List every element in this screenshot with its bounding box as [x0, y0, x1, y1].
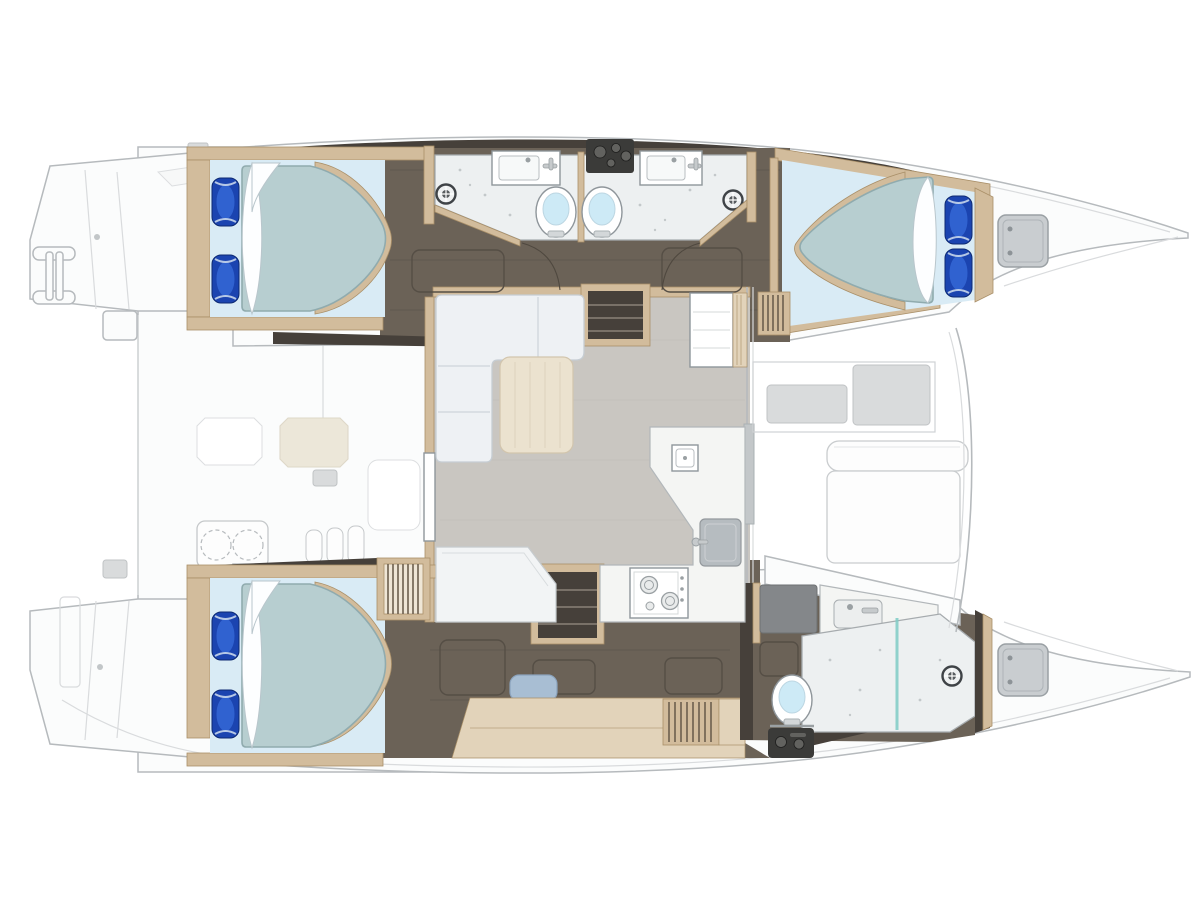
toilet: [536, 187, 576, 237]
fridge-cabinet: [690, 293, 747, 367]
shower-mixer: [943, 667, 962, 686]
vanity-sink-left: [492, 151, 560, 185]
top-load-appliance: [760, 585, 817, 633]
bed-frame: [187, 147, 433, 160]
stairs-port: [581, 284, 650, 346]
vanity-sink-right: [640, 151, 702, 185]
louvered-locker: [377, 558, 430, 620]
bed-frame: [187, 753, 383, 766]
cockpit-pad: [853, 365, 930, 425]
galley-stove: [630, 568, 688, 618]
pillow: [212, 612, 239, 660]
washer-panel: [768, 728, 814, 758]
helm-appliance: [586, 139, 634, 173]
salon-table: [500, 357, 573, 453]
bed-frame: [187, 317, 383, 330]
bath-fwd-trim: [983, 614, 992, 730]
salon-side-door: [424, 453, 435, 541]
forepeak-hatch: [998, 215, 1048, 267]
bed-frame: [187, 578, 210, 738]
desk-stool: [510, 675, 557, 701]
cockpit-vent: [758, 292, 790, 335]
floor-plan-canvas: Catamaran yacht interior layout plan (to…: [0, 0, 1200, 900]
toilet: [582, 187, 622, 237]
stern-step-port: [103, 311, 137, 340]
headboard: [975, 188, 993, 302]
cockpit-pad: [767, 385, 847, 423]
outdoor-grill-module: [197, 521, 268, 568]
deck-pad: [368, 460, 420, 530]
bathroom-divider-wall: [578, 152, 584, 242]
track-car: [313, 470, 337, 486]
deck-fitting-dot: [97, 664, 103, 670]
pillow: [212, 690, 239, 738]
bathrooms-port: [435, 139, 756, 246]
forward-bench: [827, 441, 968, 563]
deck-locker: [103, 560, 127, 578]
pillow: [212, 255, 239, 303]
shower-mixer: [437, 185, 456, 204]
louver-slats: [388, 564, 418, 614]
bath-wall-trim: [753, 583, 760, 643]
deck-fitting-dot: [94, 234, 100, 240]
deck-pad-cream: [280, 418, 348, 467]
forepeak-hatch: [998, 644, 1048, 696]
deck-steps-tabs: [306, 526, 364, 563]
bathroom-wall: [747, 152, 756, 222]
bed-frame: [187, 160, 210, 317]
toilet: [772, 675, 812, 725]
floor-plan-page: Catamaran yacht interior layout plan (to…: [0, 0, 1200, 900]
galley-small-sink: [672, 445, 698, 471]
louvered-cabinet: [663, 699, 719, 745]
pillow: [945, 249, 972, 297]
pillow: [945, 196, 972, 244]
cabin-wall: [424, 146, 434, 224]
pillow: [212, 178, 239, 226]
deck-pad: [197, 418, 262, 465]
